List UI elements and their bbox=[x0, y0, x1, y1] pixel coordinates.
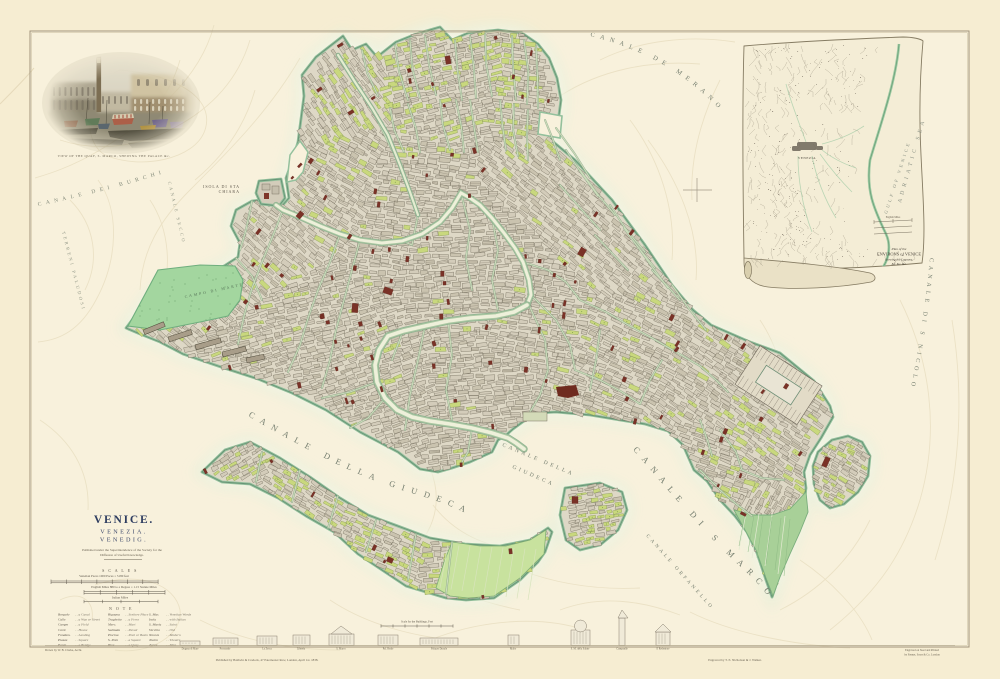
svg-text:Procuratie: Procuratie bbox=[220, 648, 232, 651]
svg-text:Novo/a: Novo/a bbox=[148, 633, 159, 637]
svg-text:VENEZIA.: VENEZIA. bbox=[100, 529, 148, 536]
svg-text:Fondam.: Fondam. bbox=[57, 633, 71, 637]
svg-text:CHIARA: CHIARA bbox=[219, 189, 240, 194]
svg-text:. . Pool or Basin: . . Pool or Basin bbox=[125, 633, 148, 637]
svg-text:S. M. della Salute: S. M. della Salute bbox=[571, 648, 590, 651]
svg-text:by Fenner, Sears & Co. London: by Fenner, Sears & Co. London bbox=[904, 654, 940, 657]
svg-text:Merc.: Merc. bbox=[107, 623, 116, 627]
svg-text:VENEZIA: VENEZIA bbox=[798, 156, 816, 160]
svg-text:. . a Field: . . a Field bbox=[75, 623, 89, 627]
svg-text:S C A L E S: S C A L E S bbox=[102, 568, 138, 573]
svg-text:. . Sestiere Place: . . Sestiere Place bbox=[125, 613, 149, 617]
svg-text:Riguana: Riguana bbox=[107, 613, 120, 617]
svg-text:Pal. Reale: Pal. Reale bbox=[383, 648, 394, 651]
svg-text:. . Old: . . Old bbox=[166, 628, 175, 632]
svg-text:VENICE.: VENICE. bbox=[94, 514, 154, 526]
svg-text:Traghetto: Traghetto bbox=[108, 618, 122, 622]
svg-text:. . a Square: . . a Square bbox=[125, 638, 141, 642]
svg-text:. . Saint: . . Saint bbox=[166, 623, 178, 627]
svg-text:. . with Italian: . . with Italian bbox=[166, 618, 186, 622]
svg-text:. . Modern: . . Modern bbox=[166, 633, 181, 637]
svg-text:Dogana di Mare: Dogana di Mare bbox=[182, 648, 200, 651]
svg-text:Corte: Corte bbox=[58, 628, 66, 632]
svg-text:Il Redentore: Il Redentore bbox=[657, 648, 671, 651]
svg-text:English Miles 880 to a Degree: English Miles 880 to a Degree = 1.15 Sta… bbox=[91, 585, 157, 589]
svg-text:Libreria: Libreria bbox=[297, 648, 306, 651]
svg-text:Rialto: Rialto bbox=[510, 648, 517, 651]
svg-text:Piazza: Piazza bbox=[57, 638, 68, 642]
svg-text:Shewing the Lagoons.: Shewing the Lagoons. bbox=[885, 258, 913, 262]
svg-text:. . Paved: . . Paved bbox=[125, 628, 137, 632]
svg-text:. . a Ferry: . . a Ferry bbox=[125, 618, 140, 622]
svg-text:Plan of the: Plan of the bbox=[891, 247, 907, 251]
svg-text:Scale for the Buildings, Feet: Scale for the Buildings, Feet bbox=[401, 621, 433, 624]
svg-text:. . Mart: . . Mart bbox=[125, 623, 137, 627]
svg-text:Published under the Superinten: Published under the Superintendence of t… bbox=[82, 548, 162, 552]
svg-text:Diffusion of Useful Knowledge.: Diffusion of Useful Knowledge. bbox=[100, 553, 144, 557]
svg-text:. . a Canal: . . a Canal bbox=[75, 613, 90, 617]
svg-text:. . Venetian Words: . . Venetian Words bbox=[166, 613, 192, 617]
svg-text:Vecchio: Vecchio bbox=[149, 628, 160, 632]
svg-text:ENVIRONS of VENICE: ENVIRONS of VENICE bbox=[877, 252, 921, 257]
svg-text:VENEDIG.: VENEDIG. bbox=[100, 537, 148, 544]
svg-text:La Zecca: La Zecca bbox=[262, 648, 272, 651]
svg-text:N O T E: N O T E bbox=[109, 606, 133, 611]
svg-text:. . Theatre: . . Theatre bbox=[166, 638, 181, 642]
svg-text:&c. &c. &c.: &c. &c. &c. bbox=[892, 262, 907, 266]
svg-text:Isola: Isola bbox=[148, 618, 156, 622]
svg-text:S. Mar.: S. Mar. bbox=[149, 613, 159, 617]
svg-text:S. Maria: S. Maria bbox=[149, 623, 162, 627]
svg-text:Engraved on Steel and Printed: Engraved on Steel and Printed bbox=[905, 649, 940, 652]
svg-text:Campanile: Campanile bbox=[616, 648, 628, 651]
svg-text:Palazzo Ducale: Palazzo Ducale bbox=[431, 648, 448, 651]
svg-text:. . a Way or Street: . . a Way or Street bbox=[75, 618, 101, 622]
svg-text:Italian Miles: Italian Miles bbox=[112, 596, 129, 600]
svg-text:Piscina: Piscina bbox=[107, 633, 119, 637]
svg-text:Teatro: Teatro bbox=[149, 638, 158, 642]
svg-text:S. Polo: S. Polo bbox=[108, 638, 118, 642]
svg-text:Venetian Paces 1000 Paces =: Venetian Paces 1000 Paces = 5180 feet bbox=[79, 574, 129, 578]
svg-text:. . Square: . . Square bbox=[75, 638, 89, 642]
svg-text:Calle: Calle bbox=[58, 618, 66, 622]
svg-text:S. Marco: S. Marco bbox=[336, 648, 346, 651]
svg-text:English Miles: English Miles bbox=[886, 216, 900, 219]
svg-text:Campo: Campo bbox=[58, 623, 68, 627]
svg-text:. . Landing: . . Landing bbox=[75, 633, 90, 637]
svg-text:Engraved by T. E. Nicholson &: Engraved by T. E. Nicholson & J. Walker. bbox=[708, 658, 762, 662]
svg-text:. . House: . . House bbox=[75, 628, 88, 632]
svg-text:Borgolo: Borgolo bbox=[58, 613, 70, 617]
svg-text:Salizada: Salizada bbox=[108, 628, 120, 632]
